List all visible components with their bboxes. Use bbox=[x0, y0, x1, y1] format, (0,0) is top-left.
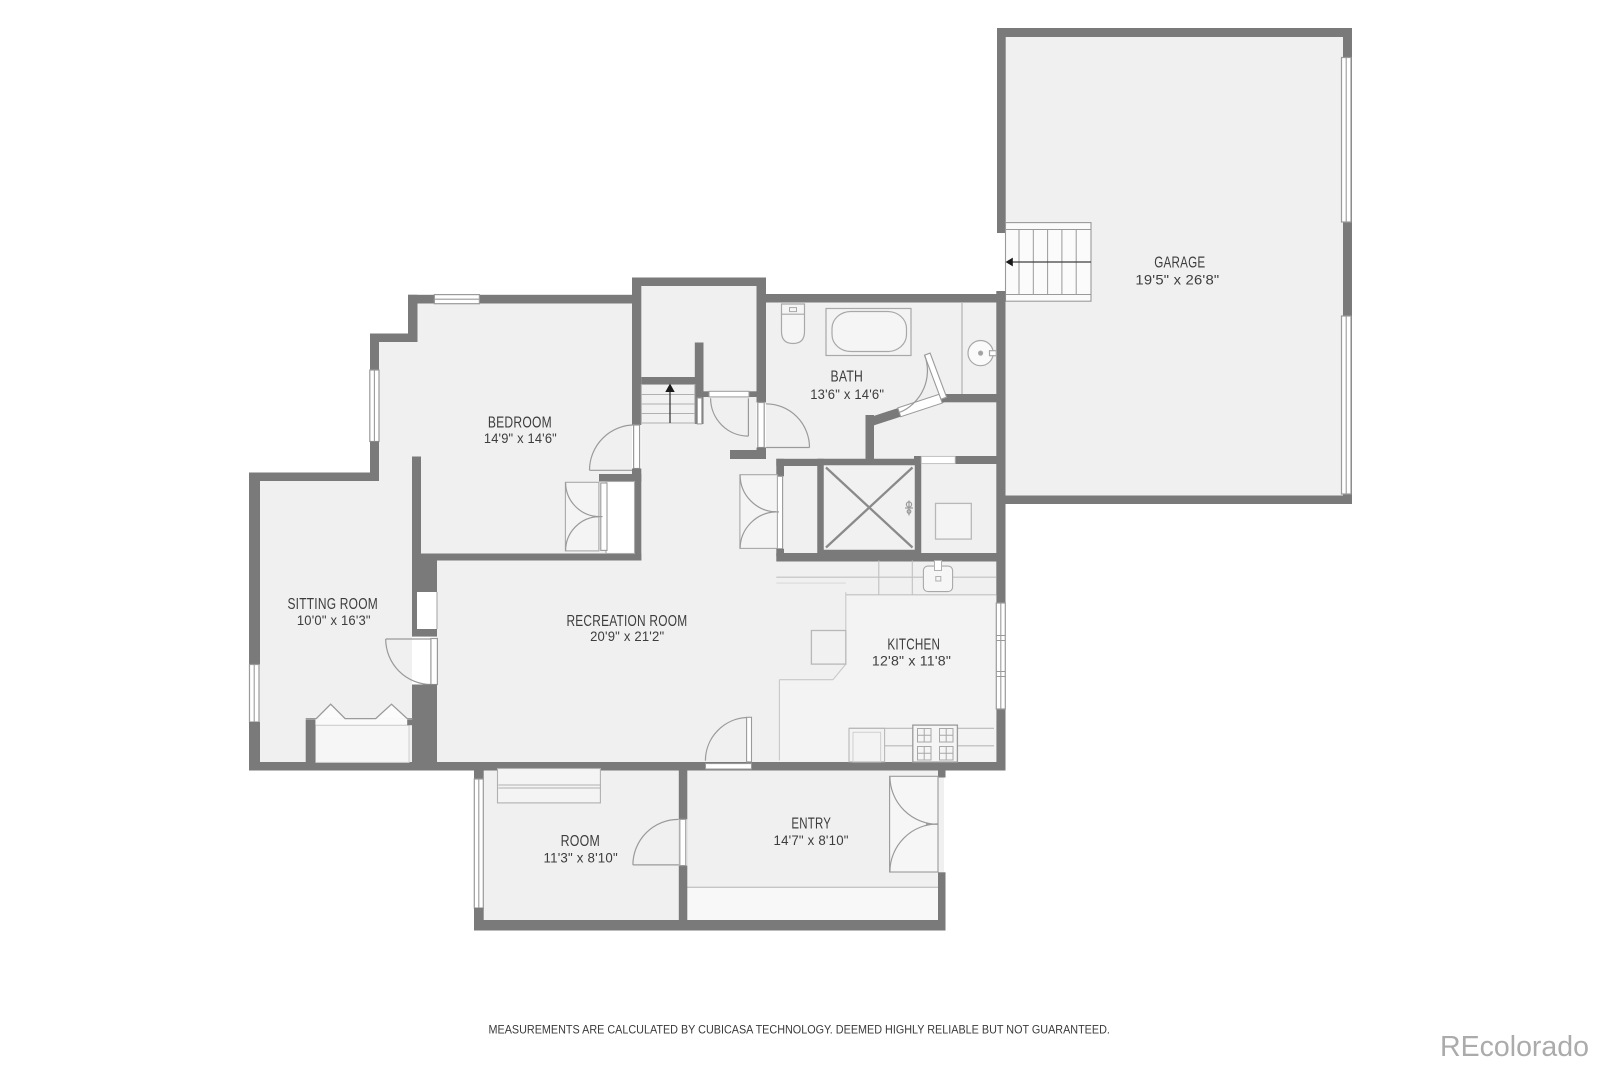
svg-text:ENTRY: ENTRY bbox=[791, 816, 831, 833]
svg-text:SITTING ROOM: SITTING ROOM bbox=[287, 596, 378, 613]
svg-text:KITCHEN: KITCHEN bbox=[887, 637, 940, 654]
svg-text:14'7" x 8'10": 14'7" x 8'10" bbox=[774, 832, 849, 848]
svg-text:MEASUREMENTS ARE CALCULATED BY: MEASUREMENTS ARE CALCULATED BY CUBICASA … bbox=[489, 1025, 1110, 1037]
svg-text:12'8" x 11'8": 12'8" x 11'8" bbox=[872, 653, 951, 669]
svg-text:13'6" x 14'6": 13'6" x 14'6" bbox=[810, 386, 884, 402]
svg-text:19'5" x 26'8": 19'5" x 26'8" bbox=[1135, 272, 1219, 288]
svg-text:BEDROOM: BEDROOM bbox=[488, 415, 552, 432]
svg-text:10'0" x 16'3": 10'0" x 16'3" bbox=[297, 612, 371, 628]
svg-text:20'9" x 21'2": 20'9" x 21'2" bbox=[590, 628, 664, 644]
svg-text:14'9" x 14'6": 14'9" x 14'6" bbox=[484, 430, 557, 446]
svg-text:11'3" x 8'10": 11'3" x 8'10" bbox=[544, 849, 618, 865]
svg-text:BATH: BATH bbox=[831, 368, 864, 385]
svg-text:GARAGE: GARAGE bbox=[1154, 255, 1205, 272]
svg-text:REcolorado: REcolorado bbox=[1440, 1031, 1589, 1063]
svg-text:ROOM: ROOM bbox=[561, 833, 600, 850]
